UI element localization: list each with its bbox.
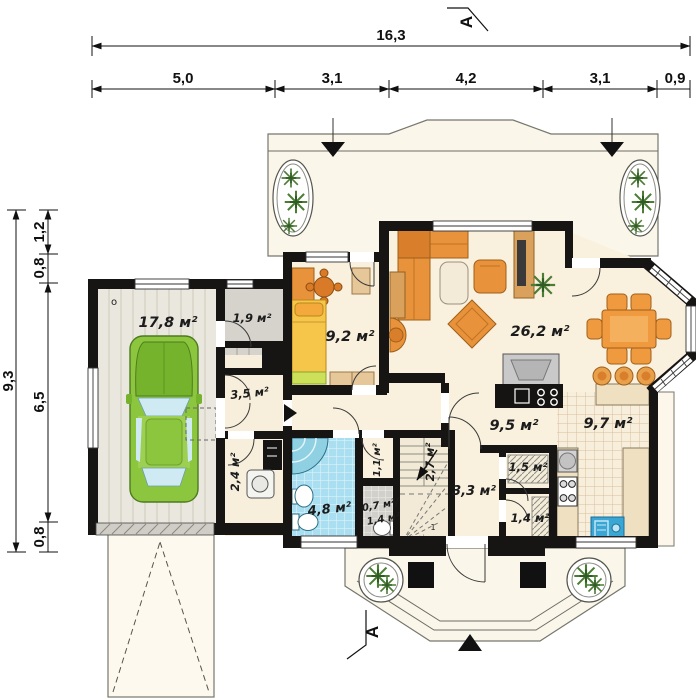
living-window <box>433 221 532 231</box>
label-storage-top: 1,9 м² <box>233 311 272 325</box>
floor-plan-drawing: 1 <box>0 0 696 700</box>
kitchen-window <box>576 537 636 548</box>
counter-right <box>623 448 649 545</box>
label-boiler-room: 2,4 м² <box>228 453 242 492</box>
tv-cabinet <box>514 228 534 298</box>
garage-corner-mark: o <box>111 297 117 308</box>
dim-left-total: 9,3 <box>0 371 17 392</box>
porch-column-right <box>520 562 546 588</box>
dim-left-seg-3: 6,5 <box>31 392 48 413</box>
bedroom-window <box>306 252 348 262</box>
dim-top-total: 16,3 <box>376 27 405 44</box>
floor-plan-page: 1 <box>0 0 696 700</box>
dim-seg-3: 4,2 <box>456 70 477 87</box>
wall-cabinet <box>390 272 405 318</box>
bar-counter <box>596 384 649 405</box>
garage-window-left <box>88 368 98 448</box>
porch-planter-right <box>567 558 611 602</box>
dim-seg-4: 3,1 <box>590 70 611 87</box>
fireplace <box>495 354 563 408</box>
garage-main-door <box>96 523 214 535</box>
label-bedroom: 9,2 м² <box>326 329 376 345</box>
label-stair-niche: 1,1 м² <box>372 443 383 477</box>
fridge <box>558 450 577 472</box>
label-stairs: 2,7 м² <box>423 443 437 482</box>
bathroom-window <box>301 536 357 548</box>
label-pantry: 1,5 м² <box>509 460 548 474</box>
label-hall: 9,5 м² <box>490 418 540 434</box>
label-living: 26,2 м² <box>510 324 570 340</box>
dim-left-seg-2: 0,8 <box>31 258 48 279</box>
section-letter-bottom: A <box>363 626 382 638</box>
section-marker-bottom: A <box>347 610 382 659</box>
stove <box>558 477 577 506</box>
label-storage-bottom: 1,4 м² <box>511 511 550 525</box>
bed <box>292 300 326 384</box>
car <box>126 336 202 502</box>
storage-top-window <box>227 280 253 288</box>
dim-seg-5: 0,9 <box>665 70 686 87</box>
terrace-planter-left <box>273 160 313 236</box>
dim-left-seg-1: 1,2 <box>31 222 48 243</box>
dimensions-top: 16,3 5,0 3,1 4,2 3,1 0,9 <box>92 27 690 98</box>
label-kitchen: 9,7 м² <box>584 416 634 432</box>
armchair-orange <box>474 260 506 293</box>
terrace-planter-right <box>620 160 660 236</box>
dim-seg-2: 3,1 <box>322 70 343 87</box>
porch-column-left <box>408 562 434 588</box>
garage-window-top <box>135 279 189 289</box>
water-heater <box>263 440 282 470</box>
boiler <box>247 470 274 498</box>
driveway <box>108 534 214 697</box>
bay-window-right <box>686 306 696 352</box>
label-garage: 17,8 м² <box>138 315 198 331</box>
section-letter-top: A <box>457 16 476 28</box>
dim-seg-1: 5,0 <box>173 70 194 87</box>
section-marker-top: A <box>447 8 488 31</box>
stair-step-number: 1 <box>430 523 435 532</box>
porch-planter-left <box>359 558 403 602</box>
living-plant <box>531 273 555 297</box>
bar-stools <box>593 367 655 385</box>
nightstand <box>352 268 370 294</box>
dimensions-left: 9,3 1,2 0,8 6,5 0,8 <box>0 210 58 552</box>
armchair-light <box>440 262 468 304</box>
label-corridor: 3,3 м² <box>452 484 496 499</box>
dim-left-seg-4: 0,8 <box>31 527 48 548</box>
